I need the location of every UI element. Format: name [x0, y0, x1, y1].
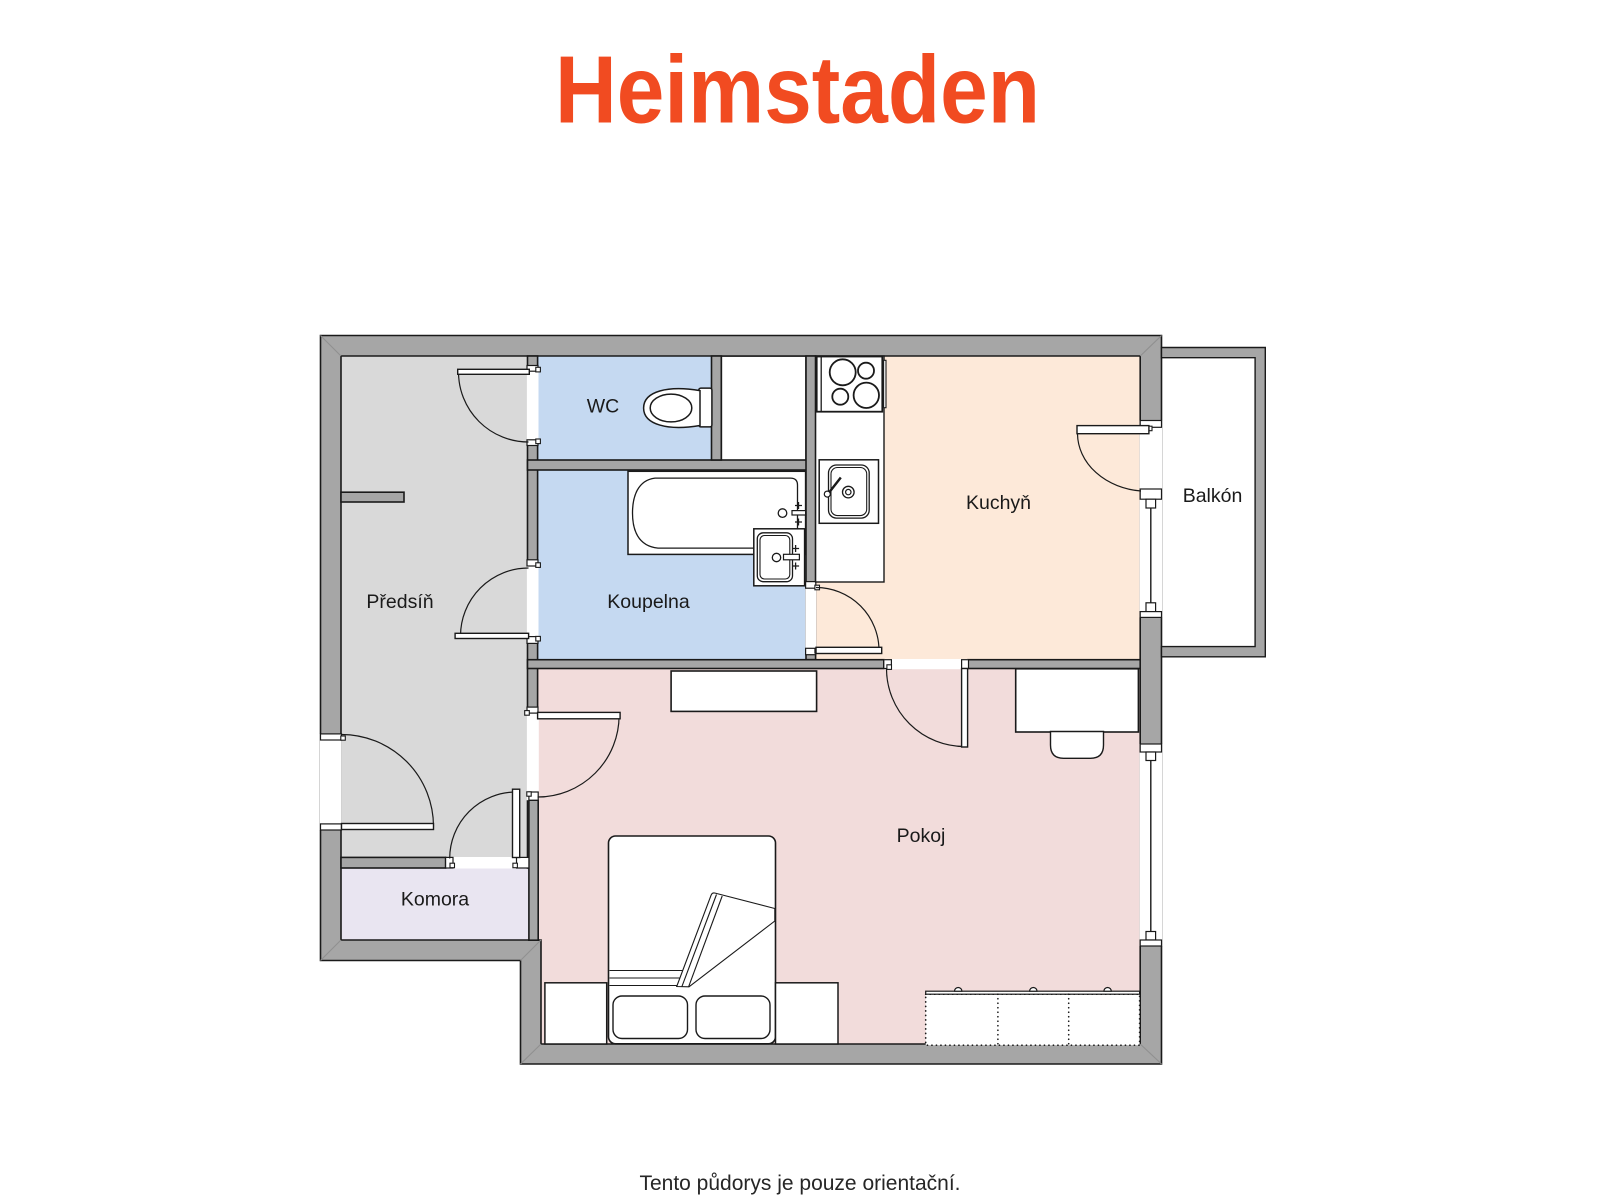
svg-text:Komora: Komora	[401, 889, 469, 911]
svg-text:Koupelna: Koupelna	[607, 591, 690, 613]
svg-text:Kuchyň: Kuchyň	[966, 492, 1031, 514]
svg-text:Pokoj: Pokoj	[897, 825, 946, 847]
svg-text:Balkón: Balkón	[1183, 485, 1243, 507]
svg-text:Heimstaden: Heimstaden	[555, 37, 1040, 144]
svg-text:Tento půdorys je pouze orienta: Tento půdorys je pouze orientační.	[639, 1172, 960, 1195]
svg-text:WC: WC	[587, 395, 620, 417]
svg-text:Předsíň: Předsíň	[366, 591, 433, 613]
